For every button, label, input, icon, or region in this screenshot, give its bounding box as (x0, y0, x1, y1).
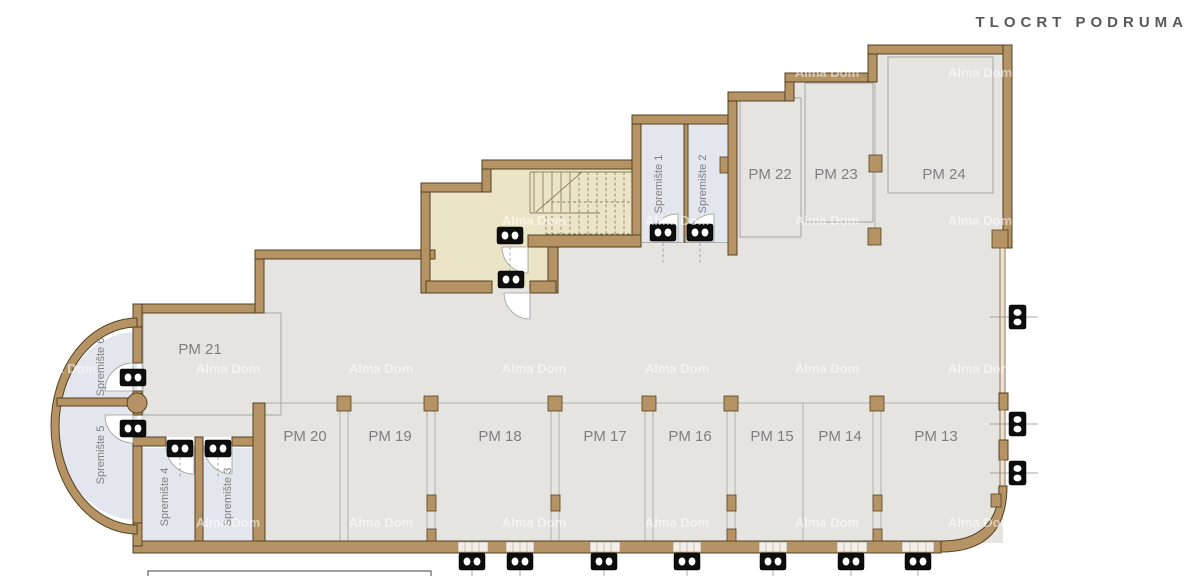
wall-storage-divider (57, 398, 137, 406)
watermark-text: Alma Dom (502, 213, 566, 228)
watermark-text: Alma Dom (795, 65, 859, 80)
wall-segment (133, 443, 142, 523)
wall-segment (133, 327, 142, 363)
vent-symbol (591, 553, 617, 576)
watermark-text: Alma Dom (349, 65, 413, 80)
watermark-text: Alma Dom (948, 361, 1012, 376)
room-label-pm-14: PM 14 (818, 428, 861, 445)
garage-floor (262, 257, 1003, 543)
column (127, 393, 147, 413)
wall-segment (133, 437, 166, 446)
watermark-text: Alma Dom (645, 65, 709, 80)
wall-segment (530, 281, 556, 293)
watermark-text: Alma Dom (948, 65, 1012, 80)
garage-floor (641, 243, 737, 261)
room-label-pm-16: PM 16 (668, 428, 711, 445)
wall-segment (133, 304, 264, 313)
room-label-pm-22: PM 22 (748, 166, 791, 183)
watermark-text: Alma Dom (502, 361, 566, 376)
wall-segment (999, 440, 1008, 460)
vent-symbol (760, 553, 786, 576)
floor-plan-page: PM 21 PM 22 PM 23 PM 24 PM 20 PM 19 PM 1… (0, 0, 1197, 576)
room-label-pm-18: PM 18 (478, 428, 521, 445)
garage-floor (877, 52, 1003, 262)
wall-bottom (133, 541, 941, 553)
watermark-text: Alma Dom (32, 515, 96, 530)
wall-segment (632, 115, 641, 245)
watermark-text: Alma Dom (349, 361, 413, 376)
room-label-spremiste-1: Spremište 1 (653, 155, 665, 214)
room-label-pm-17: PM 17 (583, 428, 626, 445)
room-label-pm-13: PM 13 (914, 428, 957, 445)
wall-segment (421, 183, 430, 293)
wall-segment (728, 92, 737, 255)
vent-symbol (674, 553, 700, 576)
wall-segment (426, 281, 492, 293)
watermark-text: Alma Dom (349, 515, 413, 530)
wall-segment (528, 235, 641, 247)
legend-box (148, 571, 431, 576)
watermark-text: Alma Dom (795, 213, 859, 228)
vent-symbol (459, 553, 485, 576)
wall-segment (728, 92, 793, 101)
watermark-text: Alma Dom (502, 65, 566, 80)
watermark-text: Alma Dom (645, 213, 709, 228)
watermark-text: Alma Dom (196, 213, 260, 228)
vent-symbol (507, 553, 533, 576)
room-label-spremiste-4: Spremište 4 (159, 468, 171, 527)
room-label-spremiste-5: Spremište 5 (95, 426, 107, 485)
watermark-text: Alma Dom (795, 361, 859, 376)
room-label-pm-20: PM 20 (283, 428, 326, 445)
wall-segment (421, 183, 491, 192)
wall-segment (991, 494, 1001, 507)
watermark-text: Alma Dom (32, 361, 96, 376)
watermark-text: Alma Dom (349, 213, 413, 228)
watermark-text: Alma Dom (32, 213, 96, 228)
room-label-pm-15: PM 15 (750, 428, 793, 445)
wall-segment (255, 250, 435, 259)
vent-symbol (905, 553, 931, 576)
vent-symbol (838, 553, 864, 576)
wall-segment (999, 393, 1008, 410)
watermark-text: Alma Dom (196, 515, 260, 530)
watermark-text: Alma Dom (645, 515, 709, 530)
window-wall (1000, 460, 1005, 488)
room-label-pm-24: PM 24 (922, 166, 965, 183)
room-label-pm-21: PM 21 (178, 341, 221, 358)
wall-segment (632, 115, 737, 124)
wall-segment (868, 45, 1012, 54)
bottom-wall-vents (458, 542, 934, 552)
room-label-spremiste-2: Spremište 2 (697, 155, 709, 214)
watermark-text: Alma Dom (32, 65, 96, 80)
watermark-text: Alma Dom (948, 213, 1012, 228)
watermark-text: Alma Dom (948, 515, 1012, 530)
watermark-text: Alma Dom (795, 515, 859, 530)
page-title: TLOCRT PODRUMA (976, 14, 1189, 31)
watermark-text: Alma Dom (502, 515, 566, 530)
wall-segment (992, 230, 1008, 248)
watermark-text: Alma Dom (196, 65, 260, 80)
room-label-spremiste-6: Spremište 6 (95, 338, 107, 397)
watermark-text: Alma Dom (196, 361, 260, 376)
floor-plan-drawing: PM 21 PM 22 PM 23 PM 24 PM 20 PM 19 PM 1… (0, 0, 1197, 576)
wall-segment (482, 160, 641, 169)
watermark-text: Alma Dom (645, 361, 709, 376)
room-label-pm-19: PM 19 (368, 428, 411, 445)
window-wall (1000, 410, 1005, 440)
room-label-pm-23: PM 23 (814, 166, 857, 183)
